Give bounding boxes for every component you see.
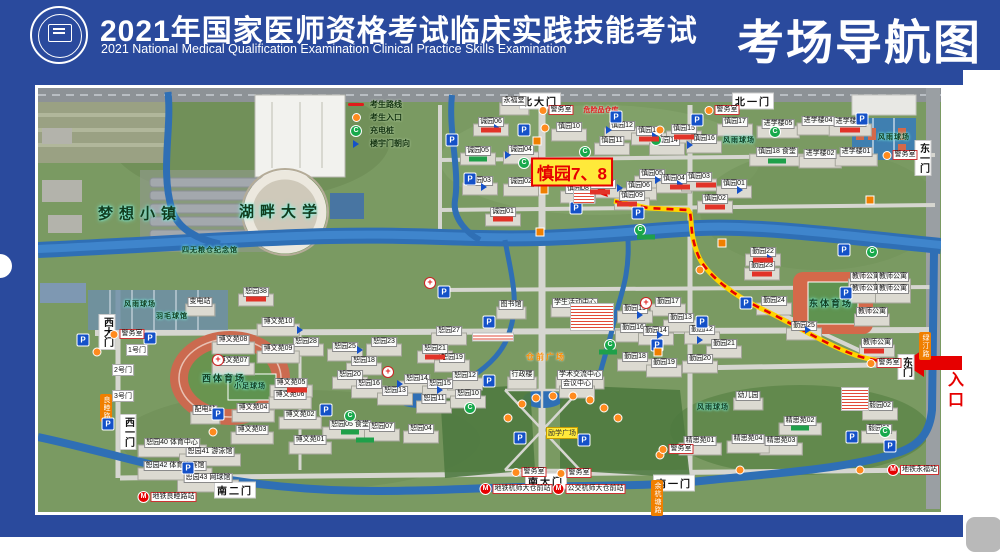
seal-building-glyph — [48, 24, 72, 42]
university-seal-logo — [30, 6, 88, 64]
campus-map — [35, 85, 963, 515]
page-title-en: 2021 National Medical Qualification Exam… — [101, 42, 741, 56]
sign-stand — [966, 517, 1000, 552]
navigation-sign-photo: 2021年国家医师资格考试临床实践技能考试 2021 National Medi… — [0, 0, 1000, 552]
page-title-right: 考场导航图 — [737, 4, 982, 73]
